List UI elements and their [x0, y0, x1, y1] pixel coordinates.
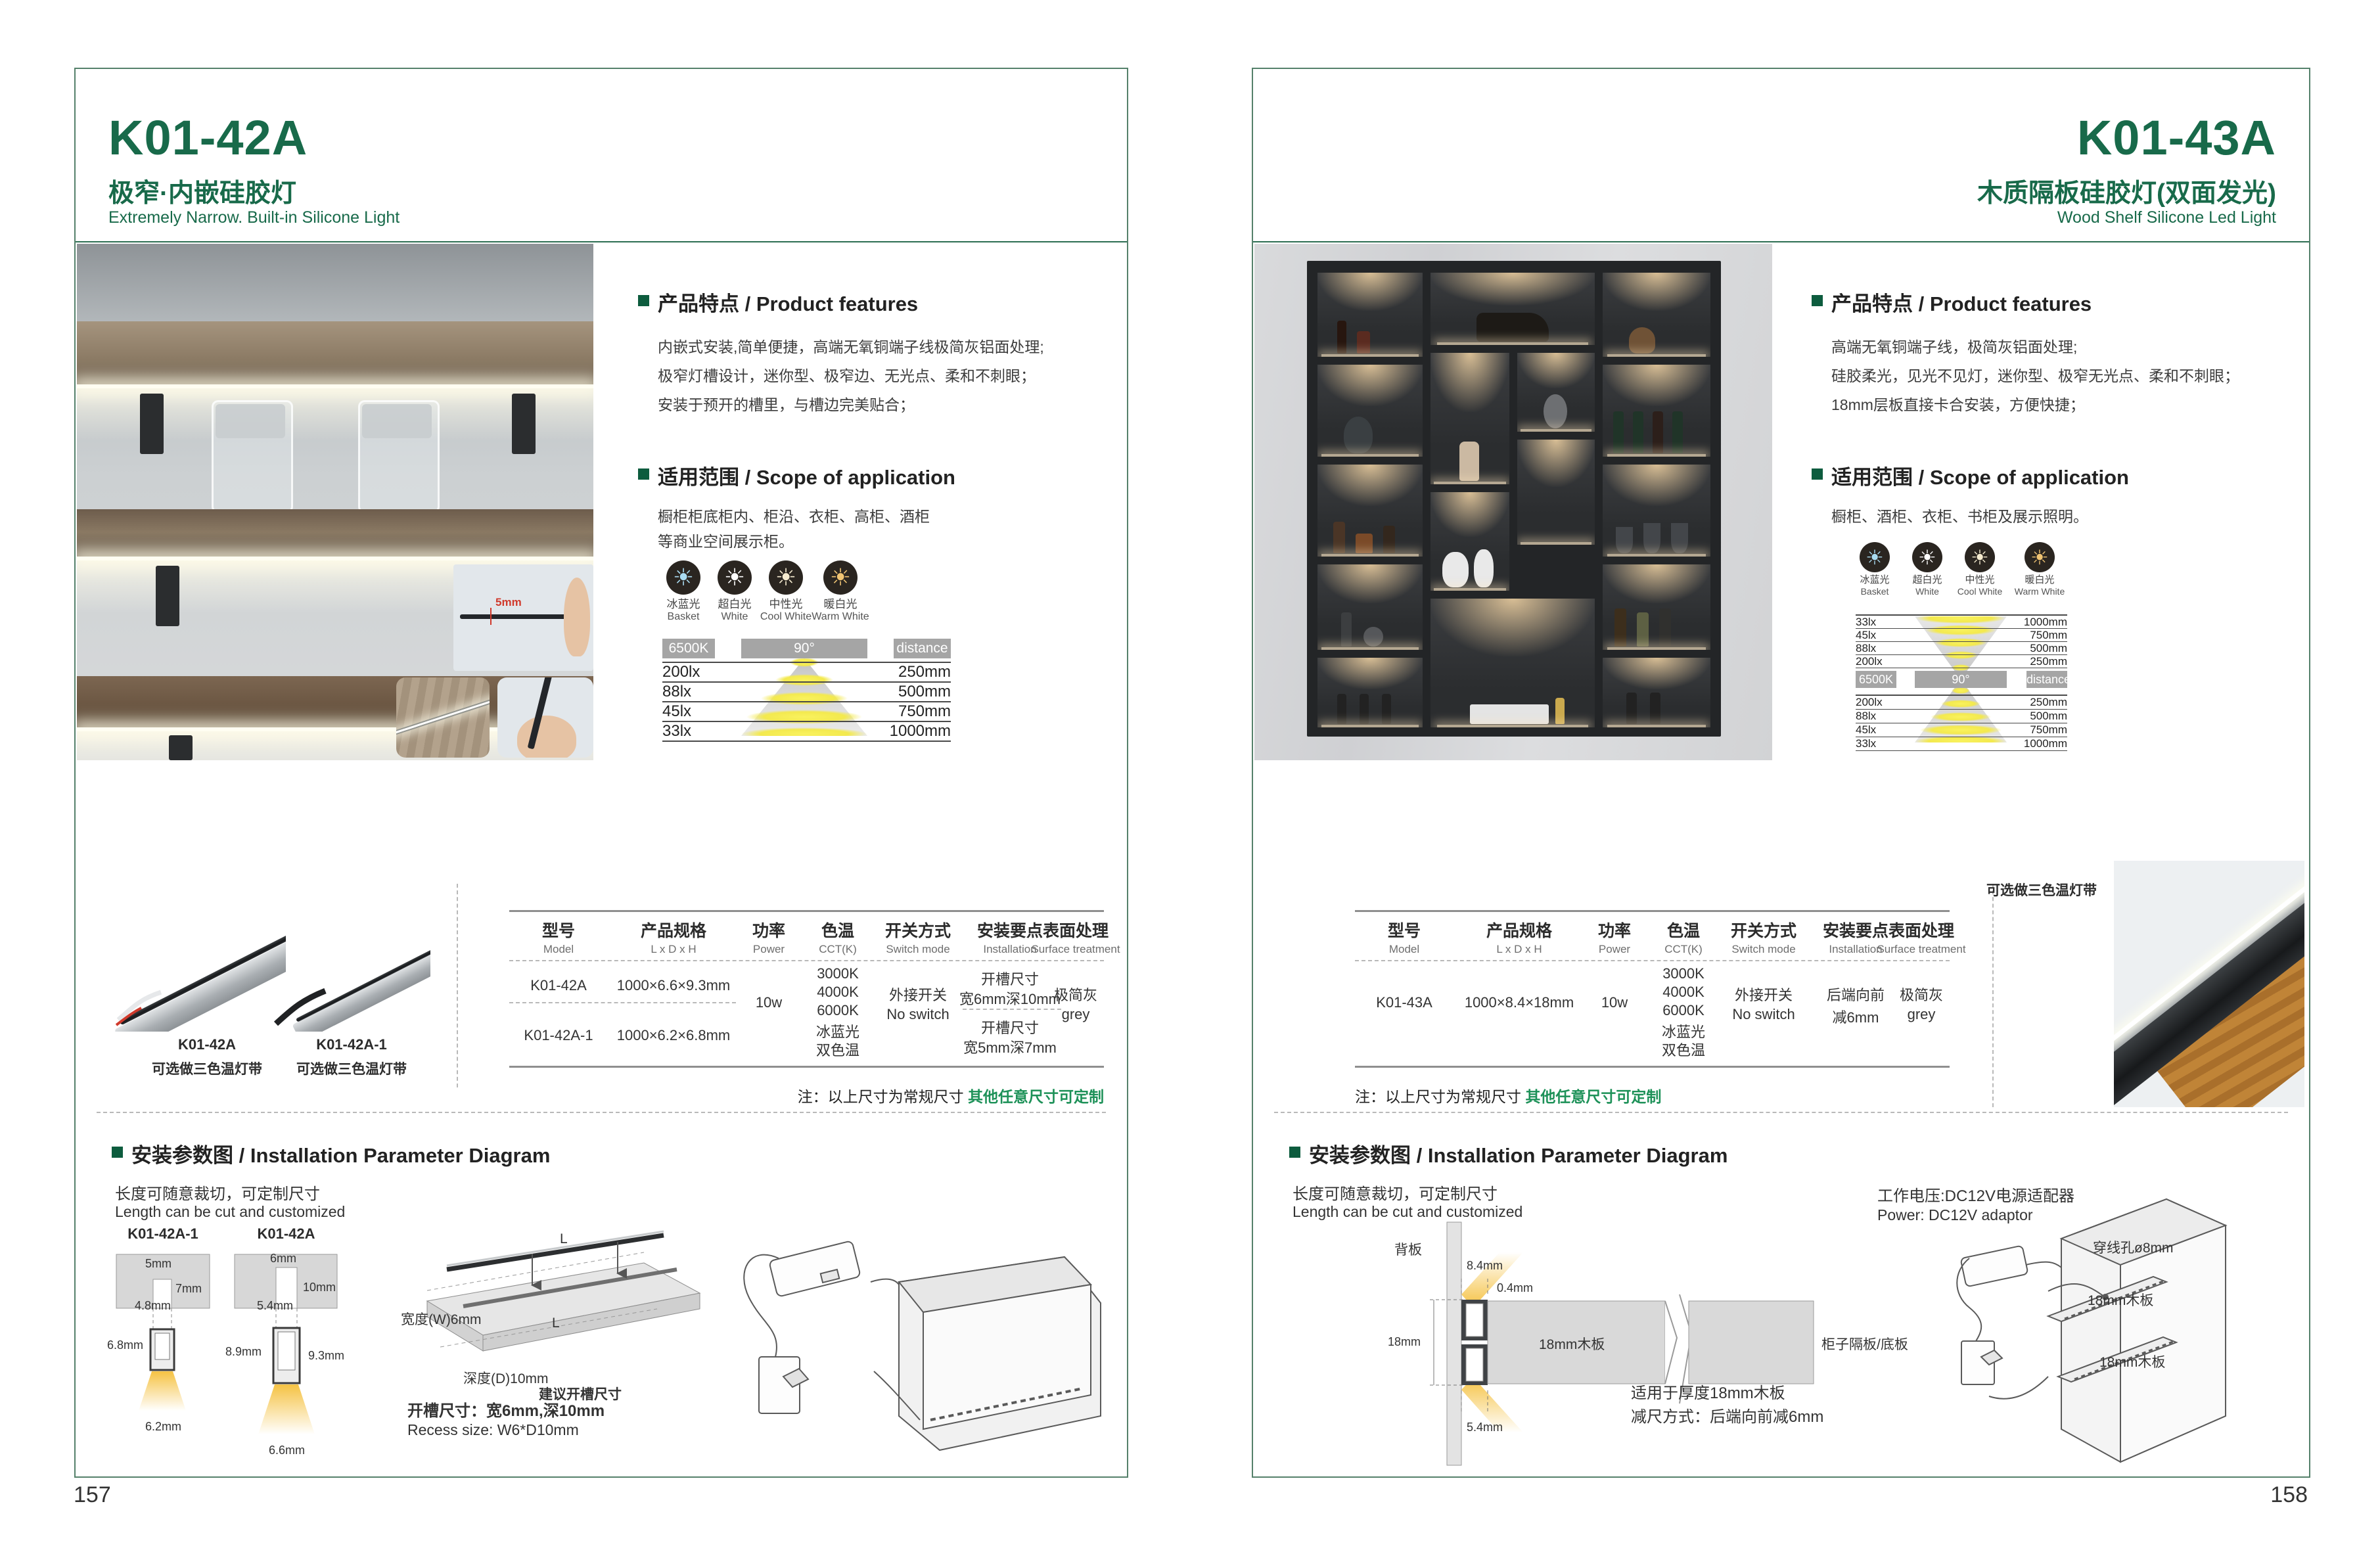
recess-note-cn: 开槽尺寸：宽6mm,深10mm [407, 1398, 605, 1421]
page-right: K01-43A 木质隔板硅胶灯(双面发光) Wood Shelf Silicon… [1252, 68, 2310, 1478]
page-subtitle-cn: 木质隔板硅胶灯(双面发光) [1977, 173, 2276, 210]
lux-row: 33lx1000mm [1856, 616, 2067, 629]
lux-row: 45lx750mm [662, 702, 951, 722]
header-rule [1253, 241, 2309, 242]
beam-angle-badge: 90° [1915, 671, 2007, 688]
features-heading: 产品特点 / Product features [1831, 287, 2092, 317]
light-color-icon: ☀ [666, 560, 700, 595]
cut-note-cn: 长度可随意裁切，可定制尺寸 [115, 1181, 320, 1204]
page-title: K01-42A [108, 110, 308, 166]
recess-note-en: Recess size: W6*D10mm [407, 1421, 579, 1439]
lux-row: 88lx500mm [662, 683, 951, 702]
page-subtitle-cn: 极窄·内嵌硅胶灯 [108, 173, 296, 210]
section-bullet [112, 1147, 123, 1158]
vertical-divider [1992, 884, 1994, 1107]
section-bullet [1812, 295, 1823, 306]
product-model-label: K01-42A [154, 1036, 260, 1053]
inset-dimension-label: 5mm [495, 596, 522, 609]
scope-line: 等商业空间展示柜。 [658, 529, 794, 551]
product-photo-shelves: 5mm [77, 244, 593, 760]
kelvin-badge: 6500K [662, 639, 715, 658]
shelf-board [77, 321, 593, 388]
kelvin-badge: 6500K [1856, 671, 1896, 688]
feature-line: 18mm层板直接卡合安装，方便快捷； [1831, 392, 2085, 415]
custom-size-note: 注：以上尺寸为常规尺寸 其他任意尺寸可定制 [509, 1084, 1104, 1107]
distance-badge: distance [2026, 671, 2067, 688]
spec-table: 型号Model 产品规格L x D x H 功率Power 色温CCT(K) 开… [1355, 910, 1950, 1068]
custom-size-note: 注：以上尺寸为常规尺寸 其他任意尺寸可定制 [1355, 1084, 1661, 1107]
cross-section-diagram-k01-42a-1: K01-42A-1 5mm 7mm 4.8mm 6.8mm 6.2mm [107, 1225, 219, 1469]
catalog-spread: K01-42A 极窄·内嵌硅胶灯 Extremely Narrow. Built… [0, 0, 2380, 1552]
product-image-k01-42a-1 [273, 880, 430, 1032]
light-color-icon: ☀ [718, 560, 752, 595]
section-bullet [638, 295, 649, 306]
inset-recessed-strip-photo [396, 677, 490, 758]
light-color-icon: ☀ [769, 560, 803, 595]
photometric-panel: ☀ 冰蓝光Basket ☀ 超白光White ☀ 中性光Cool White ☀… [654, 560, 959, 739]
lux-row: 33lx1000mm [1856, 737, 2067, 751]
page-subtitle-en: Wood Shelf Silicone Led Light [2057, 208, 2276, 227]
light-color-icon: ☀ [1912, 542, 1942, 572]
feature-line: 极窄灯槽设计，迷你型、极窄边、无光点、柔和不刺眼； [658, 363, 1036, 386]
inset-thickness-photo: 5mm [453, 564, 593, 671]
scope-heading: 适用范围 / Scope of application [1831, 461, 2129, 490]
lux-row: 88lx500mm [1856, 710, 2067, 723]
lux-distance-table-bottom: 200lx250mm 88lx500mm 45lx750mm 33lx1000m… [1856, 695, 2067, 751]
section-bullet [1812, 468, 1823, 480]
lux-row: 200lx250mm [1856, 696, 2067, 710]
lux-row: 200lx250mm [662, 663, 951, 683]
cut-note-cn: 长度可随意裁切，可定制尺寸 [1293, 1181, 1498, 1204]
product-image-k01-42a [115, 880, 286, 1032]
feature-line: 硅胶柔光，见光不见灯，迷你型、极窄无光点、柔和不刺眼； [1831, 363, 2239, 386]
features-heading: 产品特点 / Product features [658, 287, 918, 317]
light-color-icon: ☀ [1860, 542, 1890, 572]
cut-note-en: Length can be cut and customized [115, 1203, 345, 1221]
recess-3d-diagram: 宽度(W)6mm 深度(D)10mm 建议开槽尺寸 L L [401, 1222, 716, 1426]
product-photo-cabinet [1254, 244, 1772, 760]
feature-line: 高端无氧铜端子线，极简灰铝面处理; [1831, 334, 2077, 357]
shelf-cross-section-diagram: 背板 8.4mm 0.4mm 18mm 18mm木板 柜子隔板/底板 5.4mm… [1368, 1216, 1894, 1472]
scope-heading: 适用范围 / Scope of application [658, 461, 955, 490]
lux-distance-table-top: 33lx1000mm 45lx750mm 88lx500mm 200lx250m… [1856, 614, 2067, 668]
feature-line: 内嵌式安装,简单便捷，高端无氧铜端子线极简灰铝面处理; [658, 334, 1044, 357]
section-divider [97, 1112, 1106, 1113]
photometric-panel: ☀ 冰蓝光Basket ☀ 超白光White ☀ 中性光Cool White ☀… [1844, 542, 2074, 747]
product-model-label: K01-42A-1 [299, 1036, 404, 1053]
light-color-icon: ☀ [2025, 542, 2055, 572]
product-note-label: 可选做三色温灯带 [141, 1059, 273, 1078]
lux-row: 88lx500mm [1856, 642, 2067, 655]
page-number-left: 157 [74, 1482, 111, 1508]
feature-line: 安装于预开的槽里，与槽边完美贴合； [658, 392, 915, 415]
page-title: K01-43A [2077, 110, 2276, 166]
section-bullet [638, 468, 649, 480]
vertical-divider [457, 884, 458, 1087]
installation-heading: 安装参数图 / Installation Parameter Diagram [131, 1139, 550, 1168]
section-bullet [1289, 1147, 1300, 1158]
product-image-k01-43a [2114, 861, 2304, 1107]
header-rule [76, 241, 1127, 242]
scope-line: 橱柜柜底柜内、柜沿、衣柜、高柜、酒柜 [658, 504, 930, 526]
inset-hand-profile-photo [497, 677, 593, 758]
beam-angle-badge: 90° [741, 639, 867, 658]
lux-row: 33lx1000mm [662, 722, 951, 742]
section-divider [1274, 1112, 2288, 1113]
adaptor-cabinet-diagram: 穿线孔ø8mm 18mm木板 18mm木板 [1950, 1179, 2252, 1469]
lux-row: 200lx250mm [1856, 655, 2067, 668]
spec-table: 型号Model 产品规格L x D x H 功率Power 色温CCT(K) 开… [509, 910, 1104, 1068]
product-note-label: 可选做三色温灯带 [1969, 880, 2114, 900]
lux-row: 45lx750mm [1856, 629, 2067, 642]
lux-row: 45lx750mm [1856, 723, 2067, 737]
lux-distance-table: 200lx250mm 88lx500mm 45lx750mm 33lx1000m… [662, 662, 951, 742]
light-color-icon: ☀ [1965, 542, 1995, 572]
scope-line: 橱柜、酒柜、衣柜、书柜及展示照明。 [1831, 504, 2088, 526]
light-color-icon: ☀ [823, 560, 858, 595]
page-left: K01-42A 极窄·内嵌硅胶灯 Extremely Narrow. Built… [74, 68, 1128, 1478]
installation-heading: 安装参数图 / Installation Parameter Diagram [1309, 1139, 1728, 1168]
page-subtitle-en: Extremely Narrow. Built-in Silicone Ligh… [108, 208, 400, 227]
shelf-board [77, 509, 593, 560]
cross-section-diagram-k01-42a: K01-42A 6mm 10mm 5.4mm 8.9mm 9.3mm 6.6mm [225, 1225, 347, 1472]
page-number-right: 158 [2234, 1482, 2308, 1508]
distance-badge: distance [894, 639, 951, 658]
product-note-label: 可选做三色温灯带 [286, 1059, 417, 1078]
wiring-cabinet-diagram [723, 1219, 1104, 1472]
